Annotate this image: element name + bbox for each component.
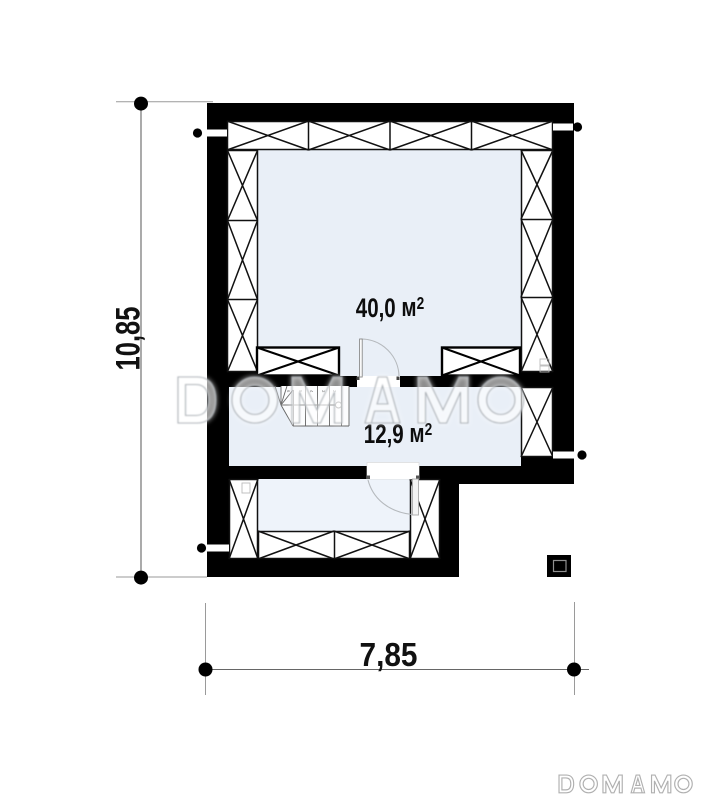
svg-text:7,85: 7,85 bbox=[360, 636, 418, 673]
svg-text:40,0 м2: 40,0 м2 bbox=[356, 292, 424, 323]
svg-text:10,85: 10,85 bbox=[110, 307, 148, 371]
